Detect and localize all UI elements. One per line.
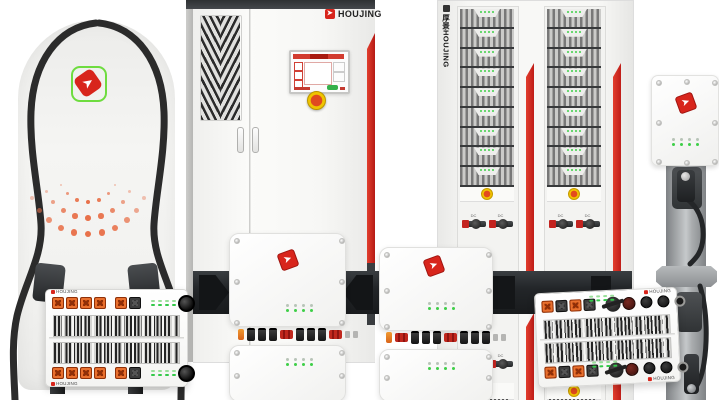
- brand-logo-icon: ➤: [422, 254, 445, 277]
- status-dot: [51, 200, 55, 204]
- brand-logo-icon: ➤: [674, 91, 697, 114]
- led-row: [672, 143, 699, 146]
- led-green: [579, 31, 581, 33]
- led: [444, 302, 447, 305]
- rack-power-module: [460, 88, 514, 108]
- screw: [234, 350, 240, 356]
- screw: [656, 159, 662, 165]
- status-dot: [97, 198, 101, 202]
- switch-pivot: [471, 219, 481, 229]
- module-notch: [561, 49, 587, 57]
- band-chevron: [199, 275, 229, 310]
- led-row: [286, 309, 313, 312]
- led-green: [571, 31, 573, 33]
- module-notch: [474, 88, 500, 96]
- switch-label: DC: [558, 213, 564, 218]
- led: [310, 358, 313, 361]
- led-row: [286, 363, 313, 366]
- led-green: [484, 110, 486, 112]
- led-green: [575, 169, 577, 171]
- led-green: [492, 130, 494, 132]
- connector-black: [558, 366, 571, 379]
- module-brand-label: HOUJING: [648, 375, 675, 381]
- brand-logo-icon: ➤: [276, 248, 299, 271]
- led-green: [575, 110, 577, 112]
- ventilation-grille: [200, 15, 242, 121]
- led: [436, 362, 439, 365]
- status-dot: [66, 192, 69, 195]
- port-grey: [493, 334, 498, 341]
- screw: [234, 373, 240, 379]
- screw: [339, 350, 345, 356]
- led-green: [575, 11, 577, 13]
- round-connector-black: [643, 362, 656, 375]
- display-header-bar: [293, 54, 344, 59]
- display-panel: [333, 72, 345, 82]
- round-connector-black: [660, 361, 673, 374]
- screw: [712, 159, 718, 165]
- led-pair: [610, 295, 614, 301]
- rack-power-module: [460, 29, 514, 49]
- port-red: [280, 330, 293, 339]
- screw: [486, 252, 492, 258]
- led-green: [567, 90, 569, 92]
- round-connector-black: [640, 296, 653, 309]
- wall-charger: [379, 349, 493, 400]
- led-cluster: [592, 361, 617, 368]
- rack-power-module: [547, 147, 601, 167]
- round-connector-ring: [677, 361, 688, 372]
- led-green: [571, 149, 573, 151]
- connector-orange: [115, 297, 127, 309]
- led-green: [579, 11, 581, 13]
- screw: [712, 120, 718, 126]
- led: [610, 295, 614, 297]
- switch-pivot: [558, 219, 568, 229]
- port-red: [395, 333, 408, 342]
- product-showcase: ➤ ➤ HOUJING: [0, 0, 719, 400]
- port-grey: [345, 331, 350, 338]
- led-cluster: [151, 300, 176, 306]
- status-dot: [71, 229, 78, 236]
- module-notch: [474, 49, 500, 57]
- module-notch: [561, 68, 587, 76]
- connector-black: [555, 300, 568, 313]
- status-dot: [121, 200, 125, 204]
- led: [165, 370, 169, 372]
- charging-gun: [677, 170, 695, 202]
- led: [310, 363, 313, 366]
- screw: [684, 160, 690, 166]
- vent-grille: [53, 315, 180, 337]
- status-leds: [428, 362, 455, 370]
- led: [294, 309, 297, 312]
- status-dot: [107, 192, 110, 195]
- red-accent-stripe: [367, 33, 375, 263]
- led-green: [575, 149, 577, 151]
- led: [452, 307, 455, 310]
- led: [444, 307, 447, 310]
- led: [613, 361, 617, 363]
- led: [310, 304, 313, 307]
- rack-power-module: [460, 9, 514, 29]
- connector-orange: [94, 367, 106, 379]
- switch-pivot: [498, 219, 508, 229]
- led-green: [579, 110, 581, 112]
- led-green: [567, 70, 569, 72]
- red-accent-stripe: [526, 59, 534, 273]
- led-pair: [603, 295, 607, 301]
- brand-name-vertical: 厚景HOUJING: [441, 14, 452, 68]
- led-row: [672, 138, 699, 141]
- screw: [339, 238, 345, 244]
- round-connector-maroon: [622, 296, 636, 310]
- led-green: [575, 70, 577, 72]
- brand-name-mini: HOUJING: [653, 375, 675, 381]
- led-green: [492, 70, 494, 72]
- led: [428, 307, 431, 310]
- screw: [339, 320, 345, 326]
- led-green: [579, 51, 581, 53]
- module-notch: [561, 88, 587, 96]
- led-green: [488, 149, 490, 151]
- rack-brand-vertical: 厚景HOUJING: [440, 5, 452, 68]
- led-green: [571, 130, 573, 132]
- port-black: [247, 328, 255, 341]
- connector-orange: [94, 297, 106, 309]
- display-main-area: [304, 62, 332, 85]
- led: [428, 302, 431, 305]
- red-accent-stripe: [613, 59, 621, 273]
- led-green: [488, 90, 490, 92]
- status-dot: [60, 184, 62, 186]
- module-notch: [561, 128, 587, 136]
- led-pair: [599, 361, 603, 367]
- led-green: [484, 90, 486, 92]
- screw: [486, 354, 492, 360]
- led-green: [480, 90, 482, 92]
- led-green: [575, 31, 577, 33]
- fan-knob: [178, 295, 195, 312]
- connector-orange: [115, 367, 127, 379]
- led: [592, 362, 596, 364]
- led: [672, 143, 675, 146]
- indicator-dot-arcs: [38, 166, 138, 248]
- switch-red-base: [549, 220, 556, 228]
- led-green: [492, 90, 494, 92]
- connector-orange: [66, 297, 78, 309]
- port-grey: [501, 334, 506, 341]
- led-row: [428, 307, 455, 310]
- rack-power-module: [460, 68, 514, 88]
- led: [158, 370, 162, 372]
- led-green: [567, 110, 569, 112]
- screw: [656, 120, 662, 126]
- led-pair: [158, 370, 162, 376]
- status-dot: [98, 213, 103, 218]
- port-black: [269, 328, 277, 341]
- led-green: [488, 11, 490, 13]
- screw: [339, 373, 345, 379]
- status-dot: [75, 198, 79, 202]
- brand-logo-icon: ➤: [325, 9, 335, 19]
- port-black: [318, 328, 326, 341]
- led-green: [480, 11, 482, 13]
- module-notch: [561, 9, 587, 17]
- led: [172, 304, 176, 306]
- charging-gun: [684, 354, 699, 394]
- screw: [384, 354, 390, 360]
- led-green: [480, 110, 482, 112]
- led-row: [428, 302, 455, 305]
- led: [165, 304, 169, 306]
- led-green: [567, 149, 569, 151]
- led: [696, 138, 699, 141]
- led: [599, 361, 603, 363]
- connector-orange: [80, 297, 92, 309]
- led-pair: [592, 362, 596, 368]
- led-green: [480, 130, 482, 132]
- led-green: [484, 11, 486, 13]
- status-dot: [61, 208, 66, 213]
- led: [158, 300, 162, 302]
- rack-power-module: [547, 88, 601, 108]
- led-green: [488, 169, 490, 171]
- status-dot: [85, 215, 91, 221]
- emergency-stop-button: [568, 188, 580, 200]
- led-green: [484, 130, 486, 132]
- screw: [486, 288, 492, 294]
- led: [589, 300, 593, 302]
- led: [151, 370, 155, 372]
- led: [596, 295, 600, 297]
- hmi-display: [289, 50, 350, 94]
- switch-label: DC: [585, 213, 591, 218]
- led: [592, 366, 596, 368]
- led: [302, 309, 305, 312]
- led-cluster: [151, 370, 176, 376]
- status-leds: [672, 138, 699, 146]
- led: [302, 363, 305, 366]
- vent-chevron-left: [201, 16, 221, 120]
- status-dot: [114, 184, 116, 186]
- module-stack: [547, 9, 601, 187]
- led-green: [567, 169, 569, 171]
- led-green: [480, 70, 482, 72]
- cabinet-top-strip: [186, 0, 375, 9]
- led: [151, 374, 155, 376]
- led: [294, 304, 297, 307]
- switch-pivot: [498, 359, 508, 369]
- led: [603, 295, 607, 297]
- status-dot: [45, 190, 48, 193]
- round-connector-maroon: [625, 362, 639, 376]
- fan-knob: [178, 365, 195, 382]
- rack-power-module: [460, 108, 514, 128]
- led: [165, 374, 169, 376]
- led: [603, 299, 607, 301]
- status-leds: [286, 358, 313, 366]
- module-notch: [474, 29, 500, 37]
- led: [294, 358, 297, 361]
- module-notch: [474, 167, 500, 175]
- led-pair: [596, 295, 600, 301]
- status-dot: [128, 190, 131, 193]
- led-pair: [165, 300, 169, 306]
- led-green: [579, 130, 581, 132]
- led: [286, 309, 289, 312]
- display-footer-text: [294, 87, 310, 90]
- connector-black: [129, 367, 141, 379]
- connector-orange: [572, 365, 585, 378]
- led: [286, 363, 289, 366]
- rack-power-module: [547, 29, 601, 49]
- led-green: [579, 70, 581, 72]
- connector-black: [129, 297, 141, 309]
- led: [436, 367, 439, 370]
- led: [310, 309, 313, 312]
- status-dot: [99, 229, 106, 236]
- screw: [684, 79, 690, 85]
- led: [452, 367, 455, 370]
- brand-logo-mini-icon: [51, 290, 55, 294]
- led-pair: [172, 300, 176, 306]
- rack-power-module: [547, 128, 601, 148]
- led-green: [575, 90, 577, 92]
- led-pair: [172, 370, 176, 376]
- led-green: [571, 11, 573, 13]
- dc-disconnect-switch: DC: [489, 216, 513, 232]
- led: [452, 302, 455, 305]
- led-green: [492, 11, 494, 13]
- led: [688, 143, 691, 146]
- dc-disconnect-switch: DC: [576, 216, 600, 232]
- port-orange: [238, 329, 244, 340]
- port-black: [422, 331, 430, 344]
- display-footer-text: [340, 87, 345, 90]
- port-red: [444, 333, 457, 342]
- brand-name-mini: HOUJING: [56, 381, 78, 386]
- rack-power-module: [547, 9, 601, 29]
- rack-power-module: [460, 167, 514, 187]
- led: [302, 358, 305, 361]
- display-button: [294, 62, 303, 71]
- led-row: [286, 358, 313, 361]
- round-connector-black: [657, 295, 670, 308]
- vent-chevron-right: [221, 16, 240, 120]
- emergency-stop-button: [307, 91, 326, 110]
- status-dot: [86, 200, 90, 204]
- led: [151, 304, 155, 306]
- led-pair: [165, 370, 169, 376]
- led-green: [575, 51, 577, 53]
- rack-power-module: [547, 108, 601, 128]
- led: [672, 138, 675, 141]
- module-notch: [474, 108, 500, 116]
- led-pair: [151, 370, 155, 376]
- led-green: [488, 130, 490, 132]
- dc-disconnect-switch: DC: [549, 216, 573, 232]
- round-connector-ring: [674, 295, 685, 306]
- status-dot: [124, 217, 130, 223]
- led: [613, 365, 617, 367]
- switch-red-base: [489, 220, 496, 228]
- connector-row: [386, 330, 486, 345]
- led: [680, 138, 683, 141]
- rectifier-module-pair: HOUJING HOUJING: [534, 287, 681, 388]
- rack-power-module: [460, 49, 514, 69]
- led-pair: [158, 300, 162, 306]
- switch-label: DC: [498, 353, 504, 358]
- led-green: [571, 110, 573, 112]
- led: [436, 302, 439, 305]
- brand-logo-mini-icon: [648, 377, 652, 381]
- wall-box-charger: ➤: [651, 75, 719, 166]
- led-green: [484, 31, 486, 33]
- connector-orange: [52, 367, 64, 379]
- led-green: [484, 70, 486, 72]
- led: [172, 370, 176, 372]
- led-row: [286, 304, 313, 307]
- led-green: [480, 149, 482, 151]
- led: [444, 367, 447, 370]
- status-dot: [112, 225, 118, 231]
- brand-logo-icon: ➤: [73, 68, 104, 99]
- status-leds: [286, 304, 313, 312]
- screw: [339, 279, 345, 285]
- module-notch: [474, 128, 500, 136]
- led: [606, 361, 610, 363]
- screw: [384, 252, 390, 258]
- led: [158, 304, 162, 306]
- switch-label: DC: [471, 213, 477, 218]
- led: [428, 362, 431, 365]
- led: [610, 299, 614, 301]
- led-green: [480, 51, 482, 53]
- dc-disconnect-switch: DC: [462, 216, 486, 232]
- module-notch: [561, 147, 587, 155]
- led: [444, 362, 447, 365]
- led-green: [492, 31, 494, 33]
- led-green: [579, 90, 581, 92]
- connector-orange: [569, 299, 582, 312]
- led-green: [492, 110, 494, 112]
- status-dot: [72, 213, 77, 218]
- led-green: [571, 70, 573, 72]
- led: [596, 299, 600, 301]
- port-grey: [353, 331, 358, 338]
- brand-name: HOUJING: [338, 9, 382, 19]
- led: [172, 300, 176, 302]
- led-green: [571, 90, 573, 92]
- module-notch: [561, 29, 587, 37]
- switch-label: DC: [498, 213, 504, 218]
- wall-charger: [229, 345, 346, 400]
- module-notch: [474, 68, 500, 76]
- screw: [234, 238, 240, 244]
- port-black: [433, 331, 441, 344]
- led-pair: [606, 361, 610, 367]
- brand-logo-badge: ➤: [71, 66, 107, 102]
- led-green: [571, 51, 573, 53]
- brand-logo-mini-icon: [51, 382, 55, 386]
- connector-row: [52, 364, 181, 382]
- led: [165, 300, 169, 302]
- module-notch: [474, 9, 500, 17]
- led: [688, 138, 691, 141]
- switch-pivot: [585, 219, 595, 229]
- module-notch: [561, 108, 587, 116]
